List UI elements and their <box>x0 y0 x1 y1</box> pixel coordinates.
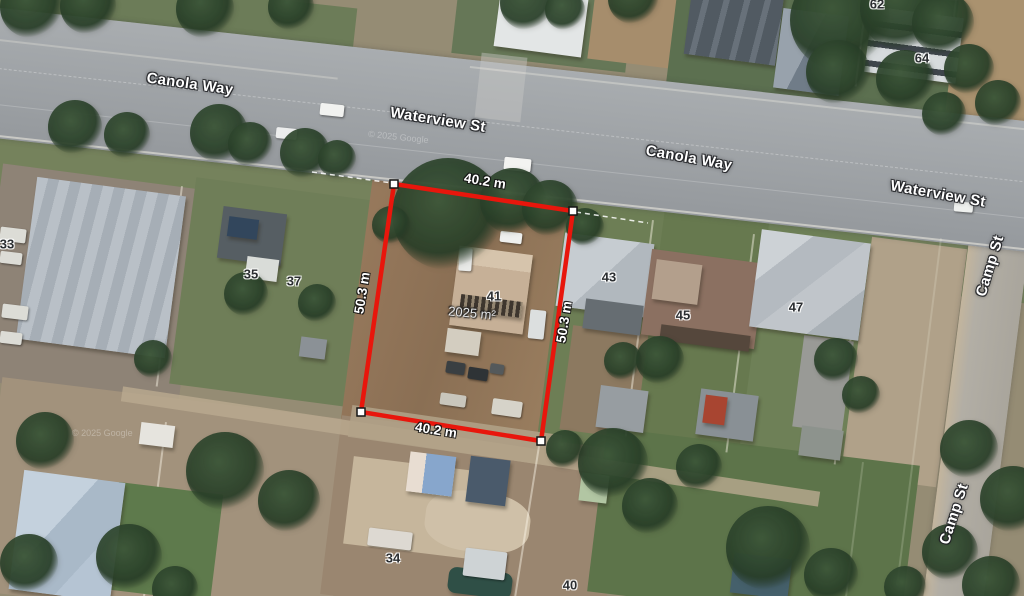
parcel-number: 37 <box>287 274 301 289</box>
measurement-overlay <box>0 0 1024 596</box>
parcel-number: 35 <box>244 267 258 282</box>
parcel-number: 45 <box>676 308 690 323</box>
corner-handle[interactable] <box>569 207 577 215</box>
parcel-number: 40 <box>563 578 577 593</box>
corner-handle[interactable] <box>537 437 545 445</box>
parcel-number: 62 <box>870 0 884 12</box>
dashed-extension-line <box>576 212 648 223</box>
parcel-number: 34 <box>386 551 400 566</box>
corner-handle[interactable] <box>390 180 398 188</box>
corner-handle[interactable] <box>357 408 365 416</box>
dashed-extension-line <box>312 172 392 183</box>
parcel-number: 43 <box>602 270 616 285</box>
parcel-number: 47 <box>789 300 803 315</box>
parcel-number: 64 <box>915 51 929 66</box>
parcel-number: 33 <box>0 237 14 252</box>
map-watermark: © 2025 Google <box>72 428 133 438</box>
parcel-number: 41 <box>487 289 501 304</box>
satellite-map[interactable]: 40.2 m 40.2 m 50.3 m 50.3 m 2025 m² Cano… <box>0 0 1024 596</box>
